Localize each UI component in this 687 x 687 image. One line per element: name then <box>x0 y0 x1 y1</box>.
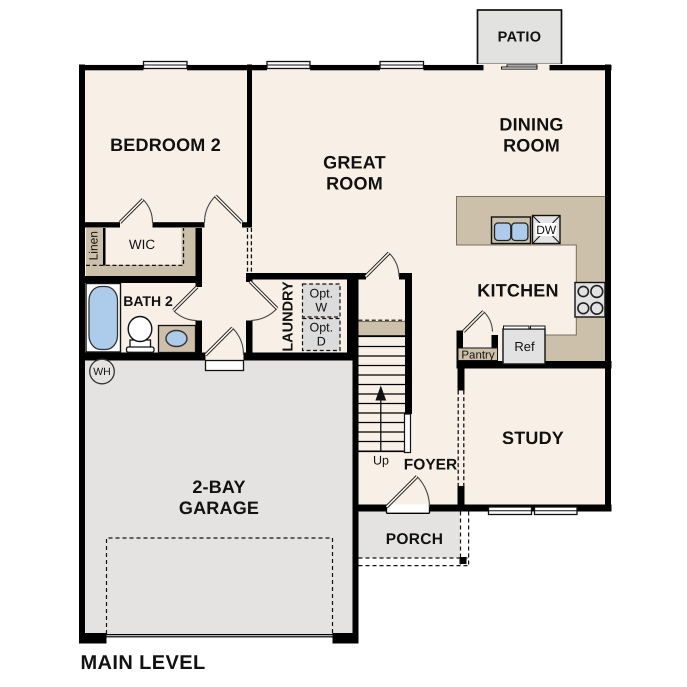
svg-text:ROOM: ROOM <box>503 136 560 156</box>
svg-text:W: W <box>315 301 327 315</box>
svg-text:GARAGE: GARAGE <box>179 498 259 518</box>
svg-text:MAIN LEVEL: MAIN LEVEL <box>81 652 206 674</box>
svg-text:LAUNDRY: LAUNDRY <box>281 281 297 352</box>
svg-text:Pantry: Pantry <box>461 350 494 362</box>
svg-text:STUDY: STUDY <box>502 428 564 448</box>
svg-text:WH: WH <box>93 366 111 378</box>
svg-text:Linen: Linen <box>87 231 101 260</box>
svg-text:GREAT: GREAT <box>323 153 386 173</box>
svg-text:Ref: Ref <box>514 339 535 354</box>
svg-text:DINING: DINING <box>499 115 563 135</box>
svg-text:Up: Up <box>373 454 389 468</box>
svg-text:PATIO: PATIO <box>498 30 542 46</box>
svg-text:D: D <box>317 335 326 349</box>
svg-text:Opt.: Opt. <box>309 287 333 301</box>
svg-text:ROOM: ROOM <box>326 174 383 194</box>
svg-text:BEDROOM 2: BEDROOM 2 <box>110 135 221 155</box>
svg-text:PORCH: PORCH <box>386 531 443 548</box>
svg-text:FOYER: FOYER <box>404 457 457 474</box>
svg-text:Opt.: Opt. <box>309 321 333 335</box>
svg-text:DW: DW <box>536 223 557 237</box>
svg-text:KITCHEN: KITCHEN <box>477 281 558 301</box>
svg-text:BATH 2: BATH 2 <box>123 293 173 309</box>
svg-text:2-BAY: 2-BAY <box>192 477 245 497</box>
svg-text:WIC: WIC <box>129 237 155 252</box>
